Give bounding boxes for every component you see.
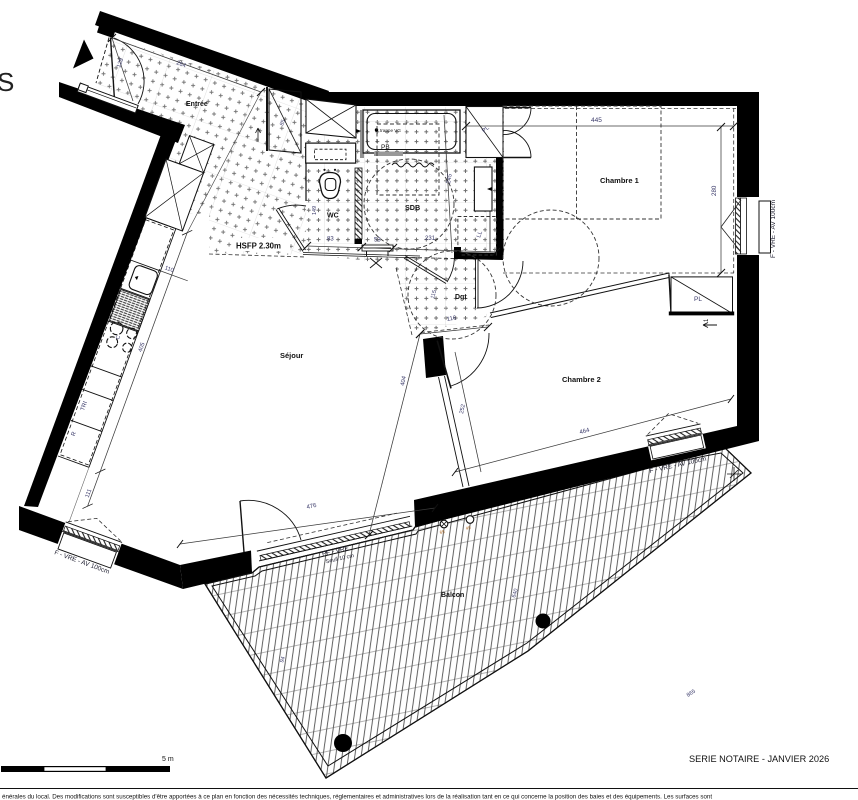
svg-text:149: 149	[312, 206, 318, 215]
svg-text:Chambre 1: Chambre 1	[600, 176, 639, 185]
svg-text:Entrée: Entrée	[186, 101, 208, 108]
svg-text:F - VRE - AV 100cm: F - VRE - AV 100cm	[770, 200, 777, 258]
svg-text:énérales du local. Des modific: énérales du local. Des modifications son…	[2, 794, 712, 800]
svg-text:83: 83	[327, 237, 334, 243]
svg-text:S: S	[0, 67, 14, 97]
svg-text:PL: PL	[694, 296, 702, 303]
svg-text:Chambre 2: Chambre 2	[562, 375, 601, 384]
svg-text:280: 280	[711, 185, 718, 196]
svg-text:Balcon: Balcon	[441, 592, 464, 599]
svg-text:231: 231	[425, 236, 436, 242]
svg-text:trappe VG: trappe VG	[380, 128, 401, 133]
svg-text:445: 445	[591, 117, 602, 124]
svg-text:Dgt: Dgt	[455, 294, 467, 301]
svg-text:SERIE NOTAIRE - JANVIER 2026: SERIE NOTAIRE - JANVIER 2026	[689, 754, 829, 764]
svg-text:SDB: SDB	[405, 203, 420, 212]
svg-text:HSFP 2.30m: HSFP 2.30m	[236, 242, 281, 251]
svg-text:Séjour: Séjour	[280, 351, 303, 360]
svg-text:WC: WC	[327, 213, 339, 220]
svg-text:PB: PB	[381, 144, 390, 151]
svg-text:53: 53	[374, 238, 381, 244]
svg-text:5 m: 5 m	[162, 756, 174, 763]
